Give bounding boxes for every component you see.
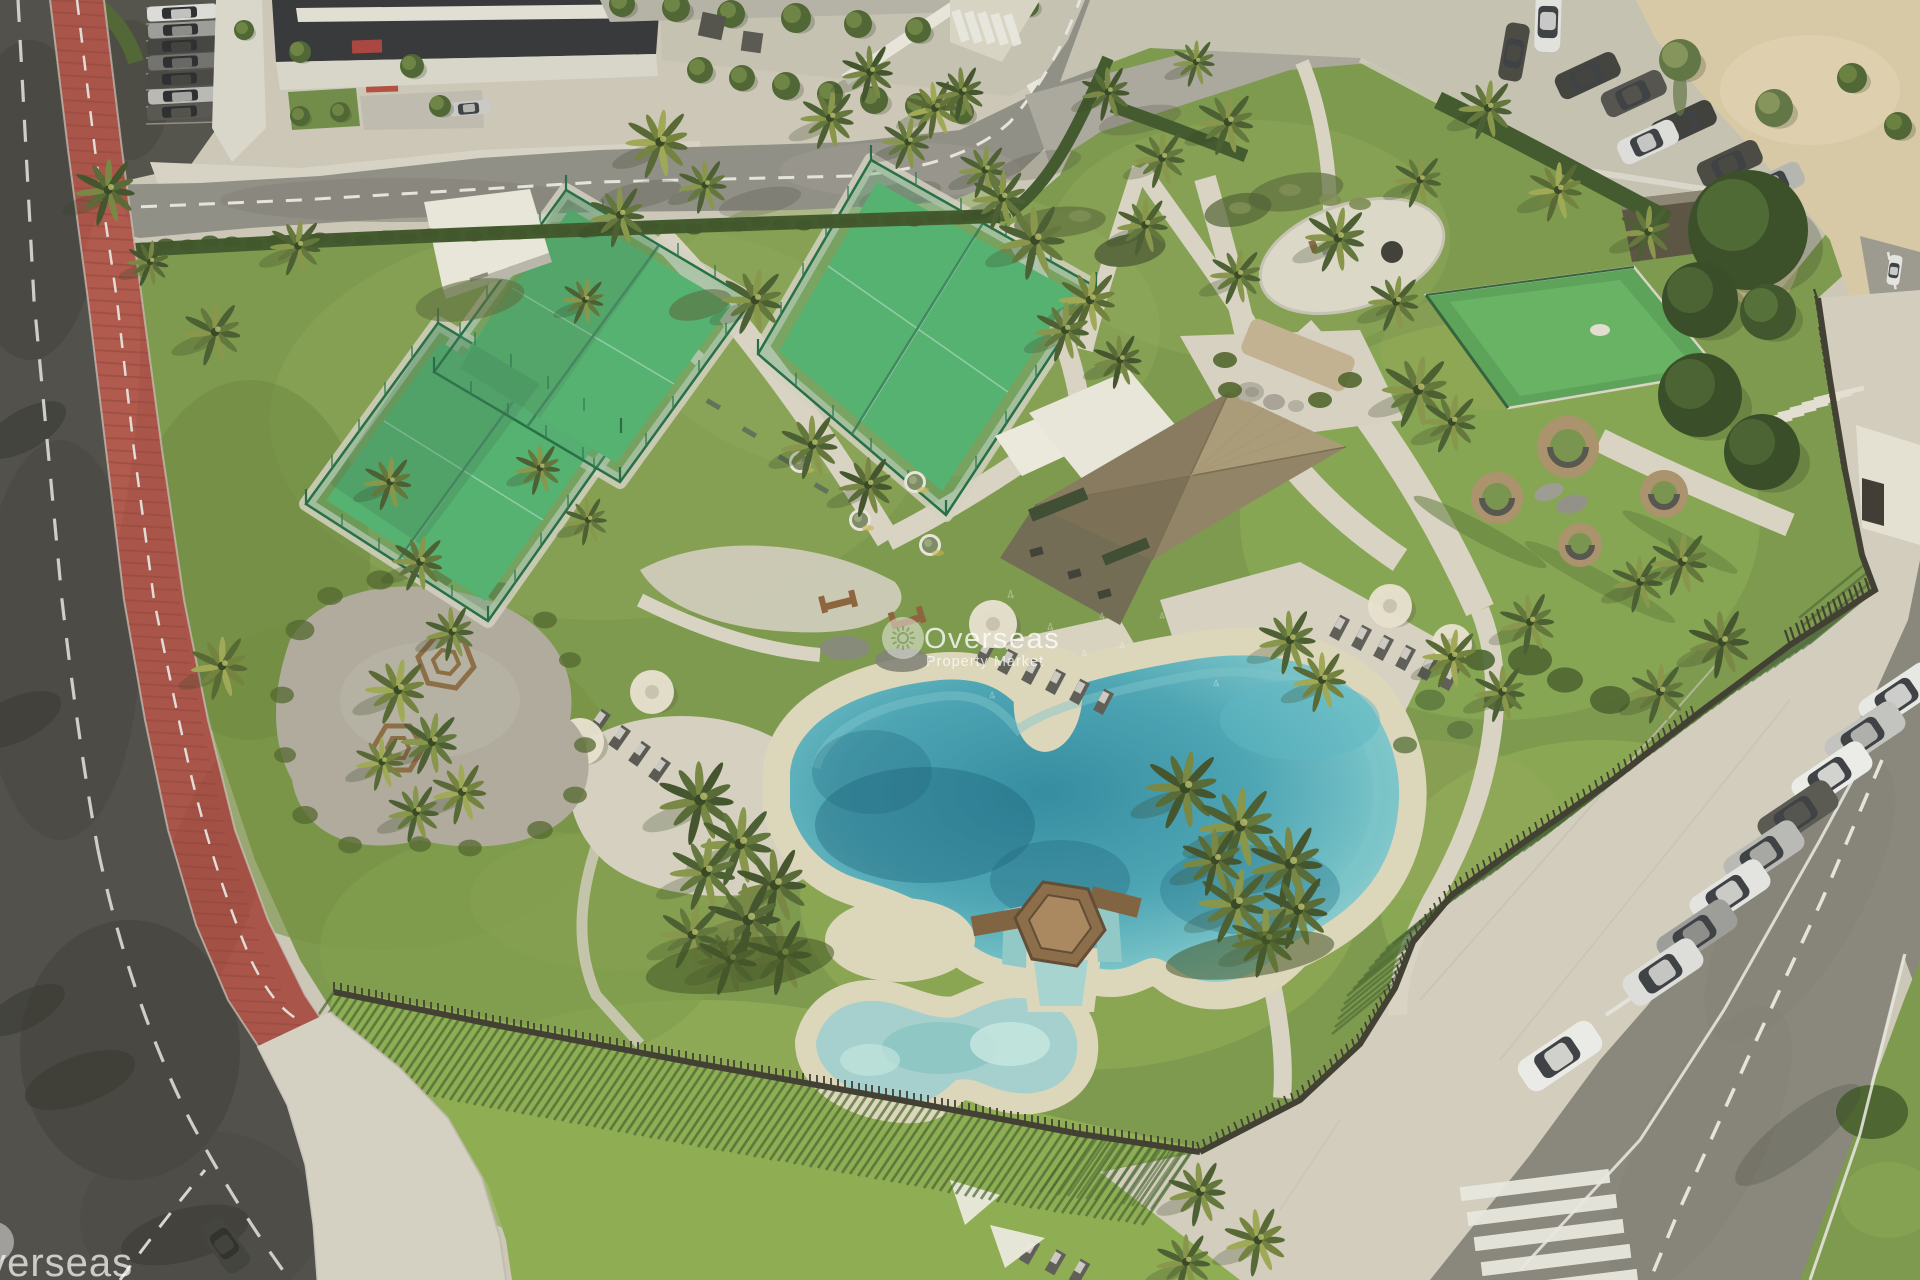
svg-text:Overseas: Overseas (0, 1241, 133, 1280)
svg-text:Property Market: Property Market (926, 654, 1044, 670)
svg-text:Overseas: Overseas (924, 623, 1060, 655)
